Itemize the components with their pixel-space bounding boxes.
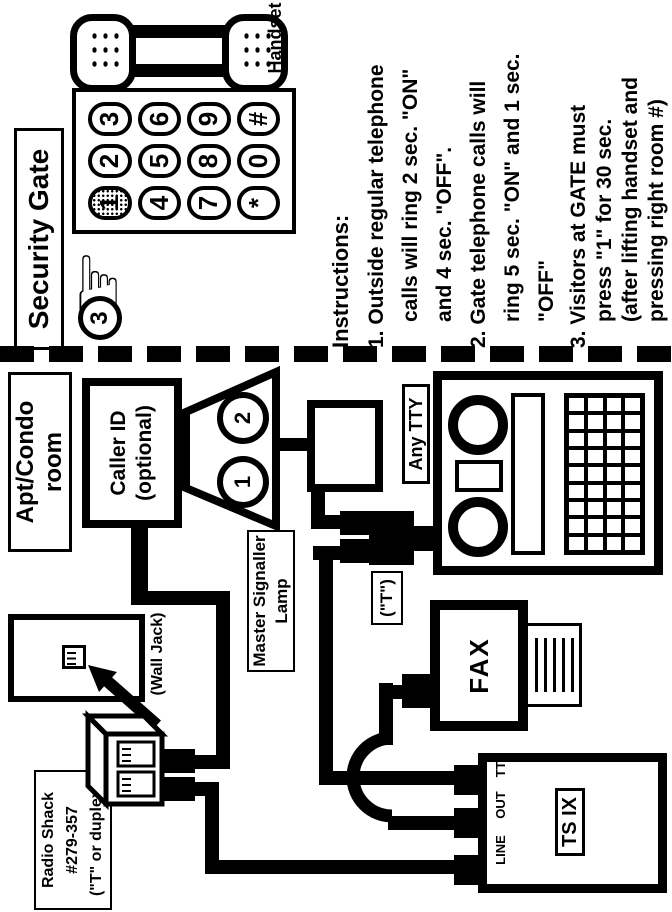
tty-display-strip xyxy=(511,393,545,555)
tty-acoustic-cup-left xyxy=(448,497,508,557)
tty-indicator xyxy=(455,460,503,492)
step-3-badge-text: 3 xyxy=(86,311,114,324)
step-3-badge: 3 xyxy=(78,296,122,340)
lamp-circle-2-label: 2 xyxy=(230,412,256,424)
section-divider-dashed xyxy=(0,346,672,362)
fax-diagram-page: Apt/Condo room Caller ID (optional) 1 2 … xyxy=(0,0,672,912)
tty-acoustic-cup-right xyxy=(448,395,508,455)
tty-keyboard xyxy=(564,393,645,555)
lamp-circle-1: 1 xyxy=(217,456,269,508)
lamp-circle-1-label: 1 xyxy=(230,476,256,488)
lamp-circle-2: 2 xyxy=(217,392,269,444)
rotated-diagram-stage: Apt/Condo room Caller ID (optional) 1 2 … xyxy=(0,0,672,912)
wire-crossover-arc xyxy=(353,738,392,816)
